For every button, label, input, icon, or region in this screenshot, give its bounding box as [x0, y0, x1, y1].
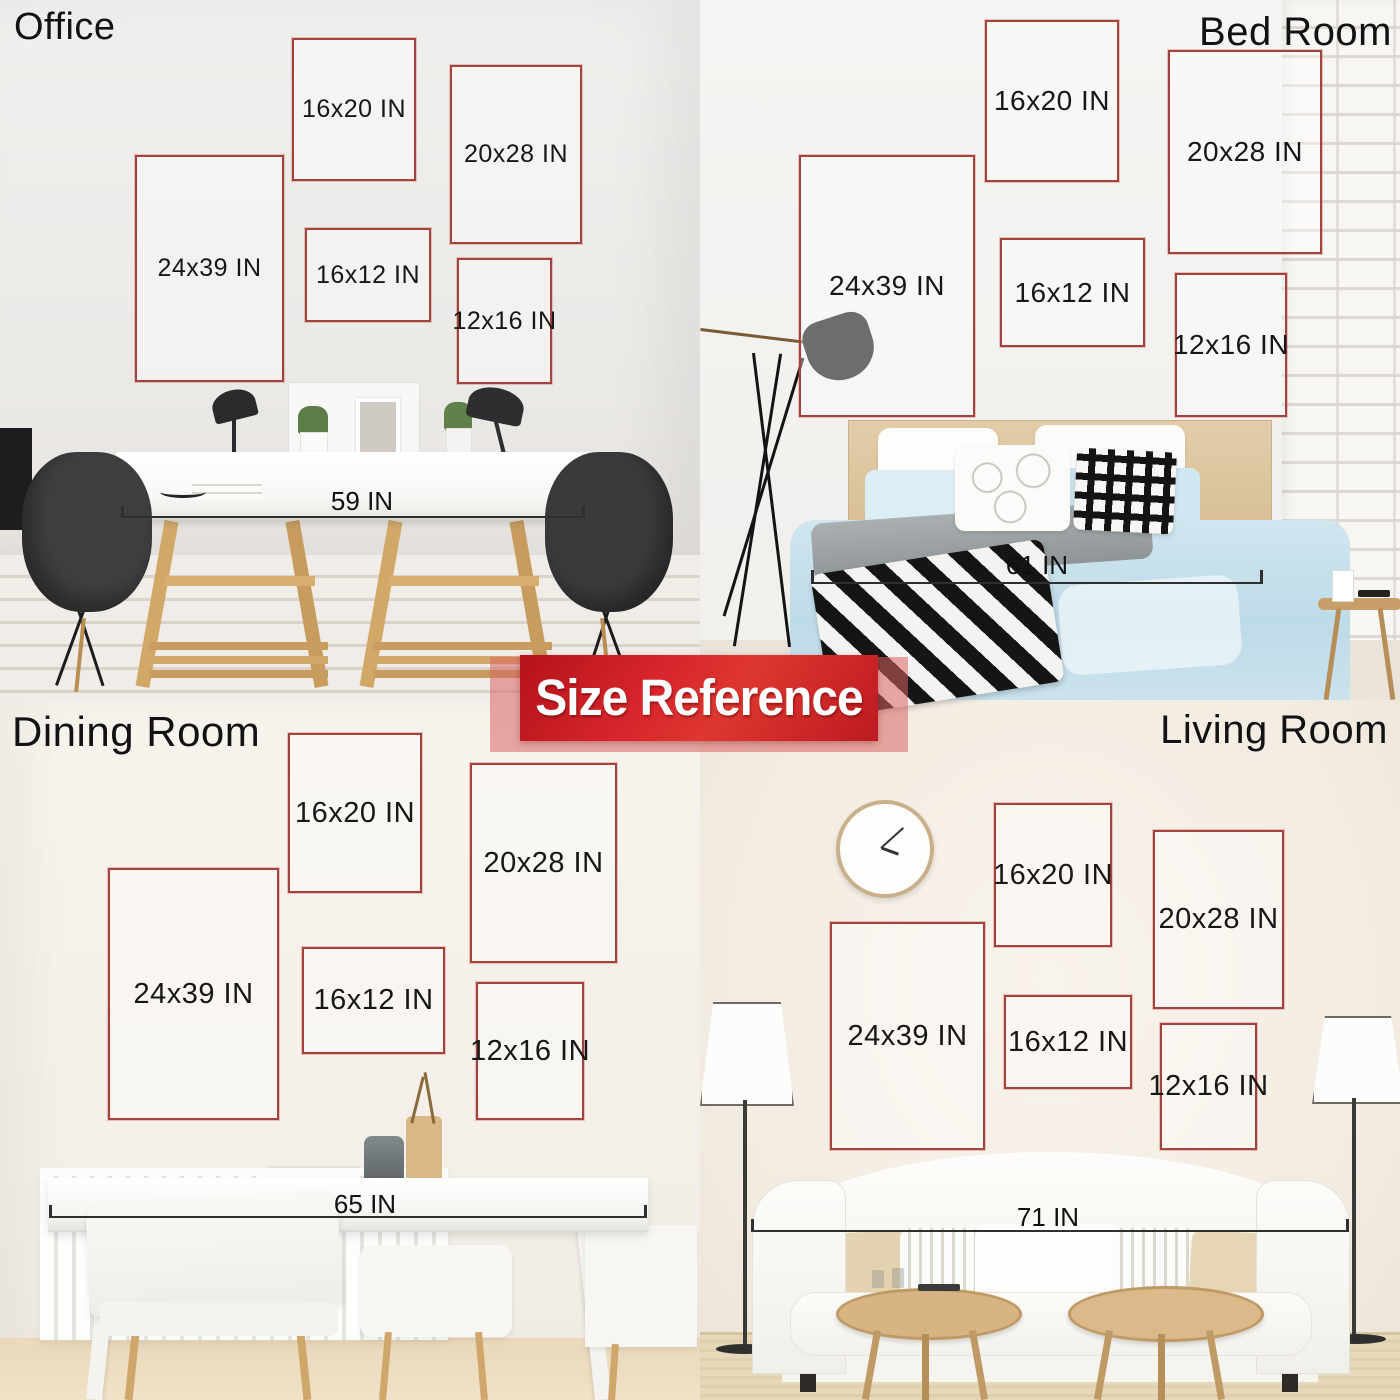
office-frame-12x16: 12x16 IN [457, 258, 552, 384]
bedroom-frame-20x28: 20x28 IN [1168, 50, 1322, 254]
living-measure-tick-right [1346, 1219, 1349, 1232]
dining-title: Dining Room [12, 708, 260, 756]
bedroom-frame-16x20-label: 16x20 IN [994, 85, 1110, 117]
dining-chair-edge-right [585, 1225, 697, 1347]
office-eyeglasses [160, 486, 206, 498]
dining-measure-tick-right [644, 1205, 647, 1218]
office-frame-16x12: 16x12 IN [305, 228, 431, 322]
living-frame-24x39-label: 24x39 IN [847, 1020, 967, 1053]
office-frame-24x39-label: 24x39 IN [157, 254, 261, 283]
office-plant [298, 406, 328, 434]
dining-frame-12x16: 12x16 IN [476, 982, 584, 1120]
living-coffee-table-left-leg [922, 1334, 929, 1400]
living-frame-24x39: 24x39 IN [830, 922, 985, 1150]
bedroom-measure-label: 61 IN [977, 550, 1097, 581]
living-frame-16x20-label: 16x20 IN [993, 859, 1113, 892]
office-trestle-crossbar [389, 576, 539, 586]
living-table-glass [892, 1268, 904, 1288]
banner-label: Size Reference [535, 669, 863, 727]
bedroom-frame-20x28-label: 20x28 IN [1187, 136, 1303, 168]
living-frame-16x12-label: 16x12 IN [1008, 1026, 1128, 1059]
office-measure-tick-left [121, 506, 124, 518]
bedroom-frame-24x39: 24x39 IN [799, 155, 975, 417]
office-frame-20x28-label: 20x28 IN [464, 140, 568, 169]
dining-frame-24x39: 24x39 IN [108, 868, 279, 1120]
bedroom-frame-16x12-label: 16x12 IN [1014, 277, 1130, 309]
size-reference-banner: Size Reference [520, 655, 878, 741]
living-measure-tick-left [751, 1219, 754, 1232]
living-frame-16x20: 16x20 IN [994, 803, 1112, 947]
living-frame-12x16: 12x16 IN [1160, 1023, 1257, 1150]
office-chair-right [545, 452, 673, 612]
bedroom-pillow-checked [1073, 447, 1177, 534]
dining-frame-20x28: 20x28 IN [470, 763, 617, 963]
living-table-remote [918, 1284, 960, 1291]
office-title: Office [14, 6, 116, 49]
dining-measure-label: 65 IN [305, 1189, 425, 1220]
living-floor-lamp-right-pole [1352, 1098, 1356, 1340]
living-sofa-leg [800, 1372, 816, 1392]
dining-measure-tick-left [49, 1205, 52, 1218]
living-frame-16x12: 16x12 IN [1004, 995, 1132, 1089]
bedroom-measure-tick-left [811, 570, 814, 584]
living-coffee-table-right-top [1068, 1286, 1264, 1342]
bedroom-frame-16x12: 16x12 IN [1000, 238, 1145, 347]
living-coffee-table-right-leg [1158, 1334, 1165, 1400]
bedroom-stool-top [1318, 598, 1400, 610]
office-frame-12x16-label: 12x16 IN [452, 307, 556, 336]
dining-chair-front-seat [100, 1302, 338, 1336]
bedroom-measure-tick-right [1260, 570, 1263, 584]
bedroom-stool-phone [1358, 590, 1390, 597]
living-measure-label: 71 IN [988, 1202, 1108, 1233]
living-coffee-table-left-top [836, 1288, 1022, 1340]
bedroom-frame-16x20: 16x20 IN [985, 20, 1119, 182]
dining-frame-16x20: 16x20 IN [288, 733, 422, 893]
living-floor-lamp-left-pole [743, 1100, 747, 1350]
office-frame-16x12-label: 16x12 IN [316, 261, 420, 290]
living-floor-lamp-right-shade [1312, 1016, 1400, 1104]
bedroom-pillow-circle-pattern [955, 445, 1070, 531]
dining-frame-16x20-label: 16x20 IN [295, 797, 415, 830]
dining-frame-16x12: 16x12 IN [302, 947, 445, 1054]
office-trestle-shelf [150, 656, 328, 664]
size-reference-collage: Office 16x20 IN 20x28 IN 24x39 IN 16x12 … [0, 0, 1400, 1400]
bedroom-title: Bed Room [1100, 10, 1392, 55]
living-frame-12x16-label: 12x16 IN [1148, 1070, 1268, 1103]
dining-frame-12x16-label: 12x16 IN [470, 1035, 590, 1068]
dining-frame-16x12-label: 16x12 IN [313, 984, 433, 1017]
dining-frame-20x28-label: 20x28 IN [483, 847, 603, 880]
bedroom-stool-mug [1332, 570, 1354, 602]
living-floor-lamp-left-shade [700, 1002, 794, 1106]
office-frame-16x20-label: 16x20 IN [302, 95, 406, 124]
office-trestle-shelf [374, 642, 552, 650]
living-title: Living Room [1092, 708, 1388, 753]
bedroom-duvet-highlight [1057, 574, 1243, 676]
office-desk-lamp-left-stem [232, 414, 236, 456]
living-sofa-leg [1282, 1372, 1298, 1392]
office-frame-16x20: 16x20 IN [292, 38, 416, 181]
bedroom-measure-line [812, 582, 1262, 584]
living-table-glass [872, 1270, 884, 1288]
office-chair-left [22, 452, 152, 612]
office-measure-tick-right [582, 506, 585, 518]
bedroom-frame-24x39-label: 24x39 IN [829, 270, 945, 302]
office-measure-label: 59 IN [302, 486, 422, 517]
dining-chair-back-right [360, 1245, 512, 1337]
office-plant-pot [446, 428, 472, 454]
living-frame-20x28-label: 20x28 IN [1158, 903, 1278, 936]
office-frame-20x28: 20x28 IN [450, 65, 582, 244]
living-frame-20x28: 20x28 IN [1153, 830, 1284, 1009]
bedroom-frame-12x16-label: 12x16 IN [1173, 329, 1289, 361]
office-trestle-shelf [150, 642, 328, 650]
bedroom-frame-12x16: 12x16 IN [1175, 273, 1287, 417]
office-trestle-shelf [150, 670, 328, 678]
dining-frame-24x39-label: 24x39 IN [133, 978, 253, 1011]
office-frame-24x39: 24x39 IN [135, 155, 284, 382]
office-trestle-crossbar [165, 576, 315, 586]
